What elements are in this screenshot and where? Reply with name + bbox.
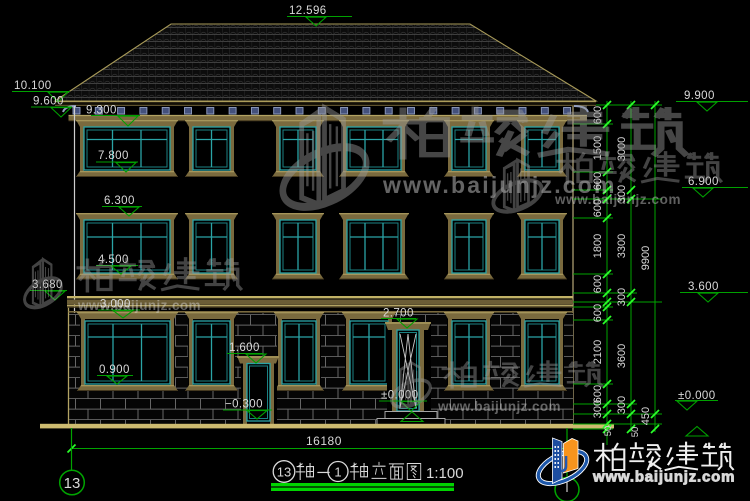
svg-text:3.600: 3.600 [688,281,719,293]
svg-text:10.100: 10.100 [14,80,52,92]
svg-text:12.596: 12.596 [289,5,327,17]
svg-text:6.300: 6.300 [104,195,135,207]
svg-text:−0.300: −0.300 [225,399,263,411]
svg-text:1:100: 1:100 [426,465,464,482]
svg-text:2.700: 2.700 [383,308,414,320]
svg-text:13: 13 [64,475,81,492]
svg-text:1.600: 1.600 [229,342,260,354]
svg-text:300: 300 [616,288,628,306]
svg-text:600: 600 [592,304,604,322]
svg-text:www.baijunjz.com: www.baijunjz.com [592,469,735,486]
svg-text:www.baijunjz.com: www.baijunjz.com [77,298,201,313]
svg-text:1: 1 [334,465,341,480]
svg-text:450: 450 [640,407,652,425]
svg-text:1500: 1500 [592,136,604,160]
svg-text:300: 300 [592,400,604,418]
svg-text:9.300: 9.300 [86,105,117,117]
svg-text:16180: 16180 [306,434,342,448]
svg-text:7.800: 7.800 [98,150,129,162]
svg-text:www.baijunjz.com: www.baijunjz.com [554,192,681,207]
svg-text:13: 13 [277,465,291,480]
svg-text:www.baijunjz.com: www.baijunjz.com [437,399,561,414]
svg-text:0.900: 0.900 [99,364,130,376]
svg-text:3600: 3600 [616,344,628,368]
svg-text:300: 300 [616,396,628,414]
svg-text:9900: 9900 [640,246,652,270]
svg-text:9.900: 9.900 [684,90,715,102]
svg-text:3300: 3300 [616,234,628,258]
svg-text:1800: 1800 [592,234,604,258]
svg-text:9.600: 9.600 [33,96,64,108]
svg-text:2100: 2100 [592,340,604,364]
svg-text:50: 50 [603,426,614,437]
svg-text:600: 600 [592,275,604,293]
svg-text:50: 50 [630,427,641,438]
